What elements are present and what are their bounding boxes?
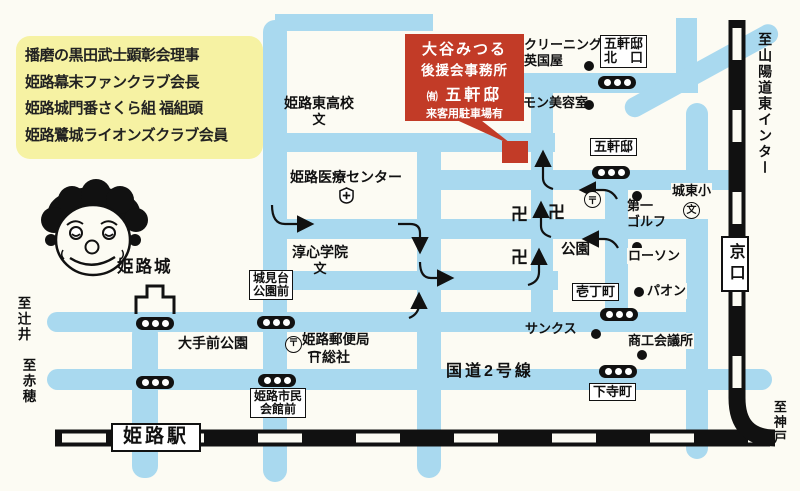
temple-icon: 卍: [511, 243, 528, 268]
place-dot-paon: [634, 287, 644, 297]
traffic-light: [592, 166, 630, 179]
traffic-light: [598, 76, 636, 89]
title-line-4: 姫路鷺城ライオンズクラブ会員: [25, 123, 254, 150]
traffic-light: [136, 317, 174, 330]
label-sunkus: サンクス: [525, 321, 577, 337]
office-callout: 大谷みつる 後援会事務所 ㈲ 五軒邸 来客用駐車場有: [405, 34, 524, 121]
school-icon: 文: [284, 112, 354, 128]
torii-icon: [307, 350, 322, 364]
office-org: 後援会事務所: [405, 59, 524, 79]
road-top-edge: [275, 14, 433, 31]
place-dot-sunkus: [591, 329, 601, 339]
hospital-icon: [339, 187, 354, 204]
label-higashi-highschool: 姫路東高校 文: [284, 95, 354, 128]
temple-icon: 卍: [511, 200, 528, 225]
label-chamber-of-commerce: 商工会議所: [627, 333, 694, 349]
traffic-light: [258, 374, 296, 387]
traffic-light: [136, 376, 174, 389]
title-line-2: 姫路幕末ファンクラブ会長: [25, 70, 254, 97]
office-parking-note: 来客用駐車場有: [405, 105, 524, 121]
office-location-marker: [502, 141, 528, 163]
box-icchomachi: 壱丁町: [572, 283, 619, 301]
school-icon: 文: [292, 261, 348, 277]
temple-icon: 卍: [548, 198, 565, 223]
box-himeji-station: 姫路駅: [111, 423, 201, 452]
traffic-light: [600, 308, 638, 321]
box-shimin-kaikanmae: 姫路市民会館前: [250, 388, 306, 418]
titles-info-box: 播磨の黒田武士顕彰会理事 姫路幕末ファンクラブ会長 姫路城門番さくら組 福組頭 …: [16, 36, 263, 159]
traffic-light: [599, 365, 637, 378]
box-kyoguchi-station: 京口: [721, 236, 749, 292]
label-joto-elementary: 城東小 文: [671, 183, 712, 219]
castle-icon: [128, 280, 182, 316]
label-to-kobe: 至神戸: [771, 400, 787, 445]
label-route2: 国道2号線: [446, 362, 534, 382]
label-junshin-gakuin: 淳心学院 文: [292, 244, 348, 277]
label-soja-shrine: 総社: [307, 349, 350, 366]
label-lawson: ローソン: [627, 248, 681, 264]
label-medical-center: 姫路医療センター: [290, 169, 402, 204]
title-line-1: 播磨の黒田武士顕彰会理事: [25, 43, 254, 70]
access-map: 播磨の黒田武士顕彰会理事 姫路幕末ファンクラブ会長 姫路城門番さくら組 福組頭 …: [0, 0, 800, 491]
label-to-tsujii: 至辻井: [14, 296, 30, 343]
road-vertical-c: [605, 172, 628, 330]
office-name: 大谷みつる: [405, 38, 524, 59]
label-daiichi-golf: 第一ゴルフ: [627, 198, 666, 230]
post-office-icon: 〒: [285, 336, 302, 353]
label-to-ako: 至赤穂: [19, 358, 35, 405]
label-cleaning-eikokuya: クリーニング英国屋: [524, 37, 602, 69]
road-vertical-east: [686, 103, 708, 459]
box-shimoteramachi: 下寺町: [589, 383, 636, 401]
elementary-school-icon: 文: [683, 202, 700, 219]
label-paon: パオン: [646, 283, 687, 299]
title-line-3: 姫路城門番さくら組 福組頭: [25, 96, 254, 123]
label-to-sanyo-interchange: 至山陽道東インター: [756, 32, 773, 176]
label-otemae-park: 大手前公園: [178, 335, 248, 352]
road-otemae-street: [132, 322, 158, 478]
box-shiromidai-koenmae: 城見台公園前: [249, 270, 293, 300]
office-company: ㈲ 五軒邸: [405, 81, 524, 105]
traffic-light: [257, 316, 295, 329]
box-gokentei: 五軒邸: [590, 138, 637, 156]
label-himeji-castle: 姫路城: [117, 257, 173, 277]
label-park: 公園: [561, 242, 590, 260]
label-mon-beauty: モン美容室: [523, 95, 588, 111]
post-office-icon: 〒: [584, 191, 601, 208]
place-dot-chamber: [637, 350, 647, 360]
company-prefix: ㈲: [427, 91, 438, 103]
box-gokentei-north-exit: 五軒邸北 口: [600, 35, 647, 68]
